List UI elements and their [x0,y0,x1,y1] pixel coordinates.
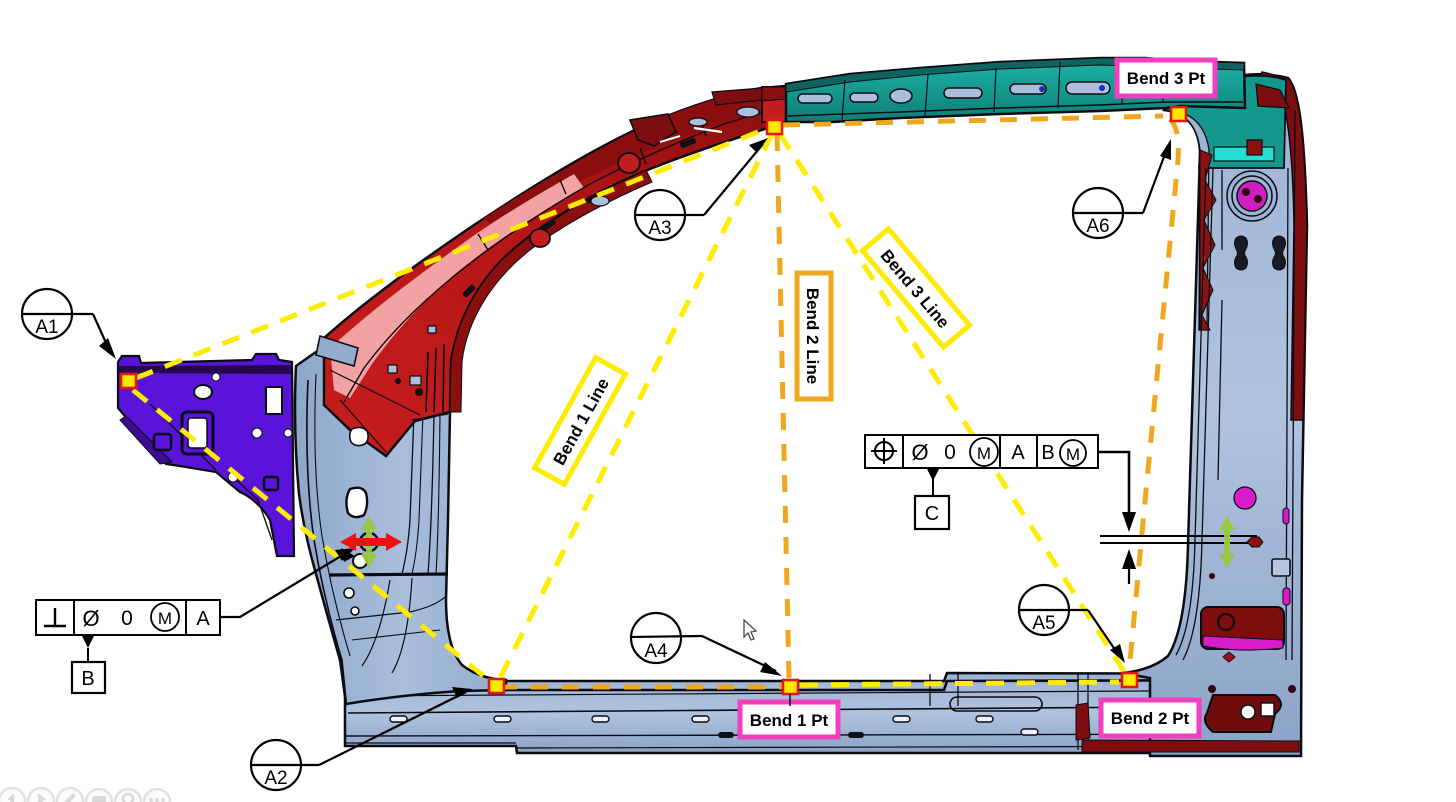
svg-text:Bend 2 Pt: Bend 2 Pt [1111,709,1190,728]
svg-text:A2: A2 [264,768,287,789]
svg-text:A: A [1011,442,1025,464]
svg-text:B: B [1041,442,1054,464]
svg-text:Bend 1 Pt: Bend 1 Pt [750,711,829,730]
svg-text:A4: A4 [644,641,668,662]
svg-text:A1: A1 [35,317,58,338]
svg-text:C: C [925,503,939,525]
svg-text:A: A [196,608,210,630]
svg-text:Ø: Ø [82,606,99,631]
svg-text:A3: A3 [648,218,671,239]
svg-text:A5: A5 [1032,613,1055,634]
svg-text:Bend 2 Line: Bend 2 Line [803,288,822,384]
svg-text:0: 0 [944,441,956,464]
svg-text:Bend 3 Pt: Bend 3 Pt [1127,69,1206,88]
svg-text:M: M [158,609,172,628]
svg-text:B: B [81,668,94,690]
svg-text:M: M [1066,445,1080,464]
svg-text:0: 0 [121,607,133,630]
svg-text:A6: A6 [1086,216,1109,237]
svg-text:M: M [977,444,991,463]
svg-text:Ø: Ø [911,440,928,465]
